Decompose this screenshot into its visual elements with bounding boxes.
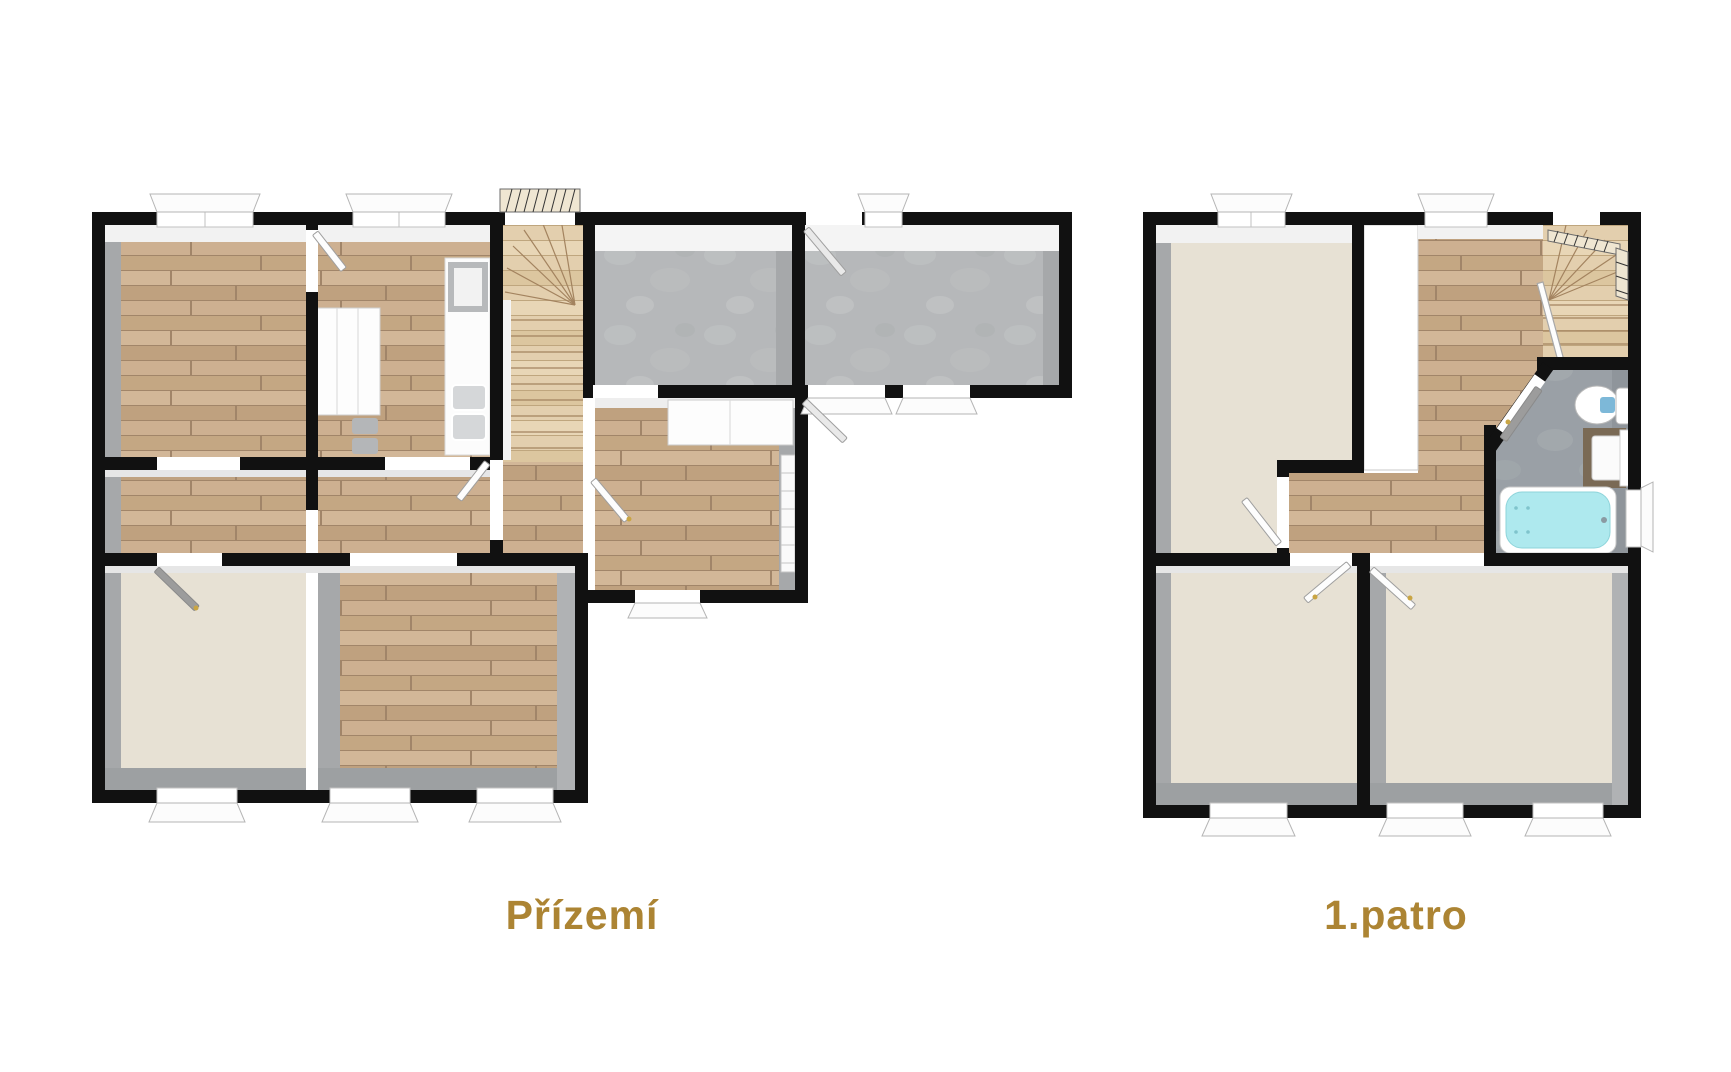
room-bedroom-bottom-left <box>1156 566 1357 805</box>
stair-opening <box>1553 212 1600 225</box>
room-corridor-left <box>105 470 306 553</box>
bathtub <box>1506 492 1610 548</box>
window-sill <box>322 803 418 822</box>
first-floor-plan <box>1143 194 1653 836</box>
built-in-closet <box>1364 225 1418 470</box>
stair-railing <box>500 189 580 212</box>
ground-floor-plan <box>92 189 1072 822</box>
kitchen-sink <box>452 385 486 410</box>
stair-landing <box>503 462 583 553</box>
ground-floor-label: Přízemí <box>506 892 659 938</box>
door-handle <box>627 517 632 522</box>
room-living <box>318 566 575 790</box>
window-sill <box>469 803 561 822</box>
window-sill <box>896 398 977 414</box>
window-sill <box>150 194 260 212</box>
door-handle <box>1313 595 1318 600</box>
window <box>1425 210 1487 227</box>
kitchen-chair <box>352 438 378 454</box>
first-floor-label: 1.patro <box>1324 892 1468 938</box>
toilet-lid <box>1600 397 1615 413</box>
bathtub-drain <box>1601 517 1607 523</box>
window <box>1387 803 1463 820</box>
window <box>477 788 553 805</box>
floor-plan-image: Přízemí 1.patro <box>0 0 1731 1072</box>
door-handle <box>194 606 199 611</box>
bathroom-window <box>1626 490 1641 547</box>
kitchen-cabinet <box>316 308 380 415</box>
window-sill <box>1418 194 1494 212</box>
window-sill <box>149 803 245 822</box>
window-sill <box>1641 482 1653 552</box>
room-bedroom-top-left <box>105 225 306 457</box>
window <box>1210 803 1287 820</box>
room-corridor <box>318 470 490 553</box>
window <box>865 210 902 227</box>
window-sill <box>1379 818 1471 836</box>
window-sill <box>1525 818 1611 836</box>
room-staircase <box>503 215 583 462</box>
window <box>1533 803 1603 820</box>
entry-step <box>628 603 707 618</box>
window-sill <box>1211 194 1292 212</box>
window-sill <box>1202 818 1295 836</box>
floor-plan-page: Přízemí 1.patro <box>0 0 1731 1072</box>
window <box>157 788 237 805</box>
window-sill <box>346 194 452 212</box>
kitchen-sink <box>452 414 486 440</box>
ground-railing <box>500 189 580 212</box>
kitchen-chair <box>352 418 378 434</box>
window <box>330 788 410 805</box>
door-handle <box>1408 596 1413 601</box>
door-handle <box>1506 420 1511 425</box>
window-sill <box>858 194 909 212</box>
vanity-sink <box>1592 436 1622 480</box>
room-bedroom-bottom-left <box>105 566 306 790</box>
stair-opening <box>505 212 575 225</box>
